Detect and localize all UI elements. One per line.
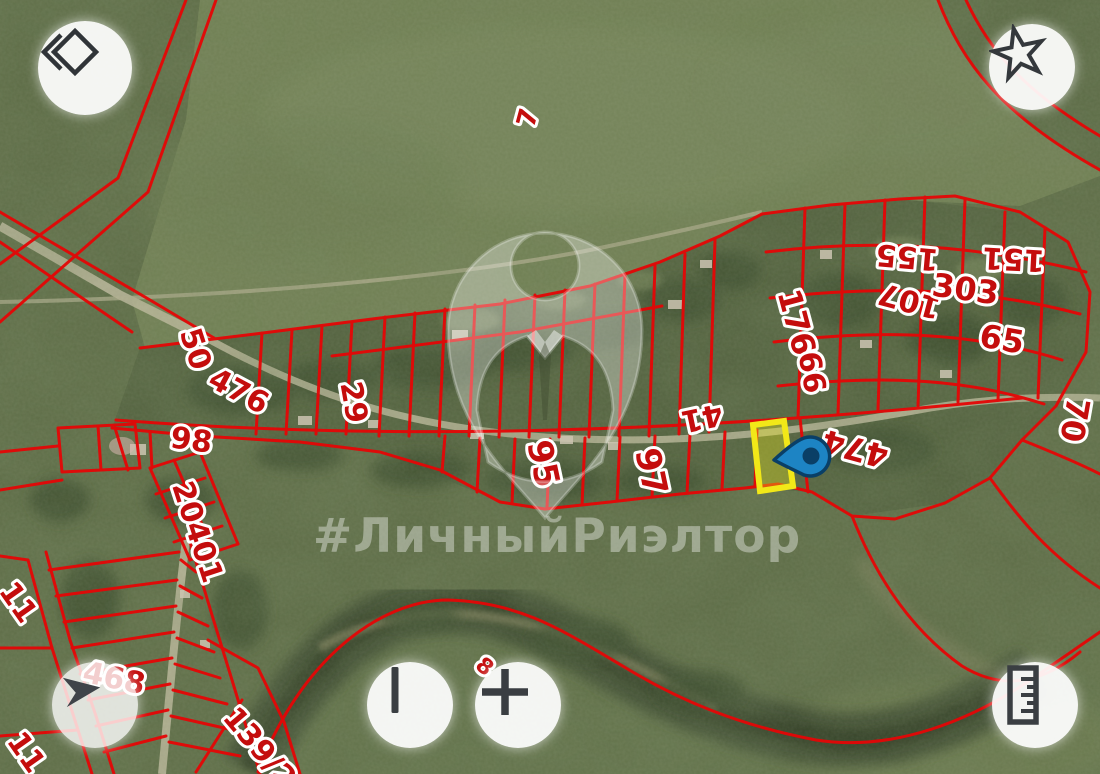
- parcel-label: 66: [790, 349, 832, 396]
- watermark-text: #ЛичныйРиэлтор: [313, 509, 801, 564]
- parcel-label: 98: [168, 420, 214, 460]
- zoom-out-button[interactable]: [367, 662, 453, 748]
- navigation-arrow-icon: [52, 662, 108, 718]
- compass-button[interactable]: [52, 662, 138, 748]
- back-button[interactable]: [38, 21, 132, 115]
- zoom-out-bar-icon: [367, 662, 423, 718]
- parcel-label: 65: [977, 317, 1027, 362]
- map-viewer: 7504762998204019597411766647415510715130…: [0, 0, 1100, 774]
- parcel-label: 155: [874, 236, 939, 276]
- back-diamond-icon: [38, 21, 100, 83]
- favorite-button[interactable]: [989, 24, 1075, 110]
- parcel-label: 70: [1052, 395, 1097, 445]
- star-icon: [989, 24, 1049, 84]
- measure-button[interactable]: [992, 662, 1078, 748]
- zoom-in-button[interactable]: [475, 662, 561, 748]
- ruler-icon: [992, 662, 1054, 728]
- plus-icon: [475, 662, 535, 722]
- map-canvas[interactable]: 7504762998204019597411766647415510715130…: [0, 0, 1100, 774]
- parcel-label: 151: [981, 239, 1045, 277]
- parcel-label: 29: [332, 379, 374, 426]
